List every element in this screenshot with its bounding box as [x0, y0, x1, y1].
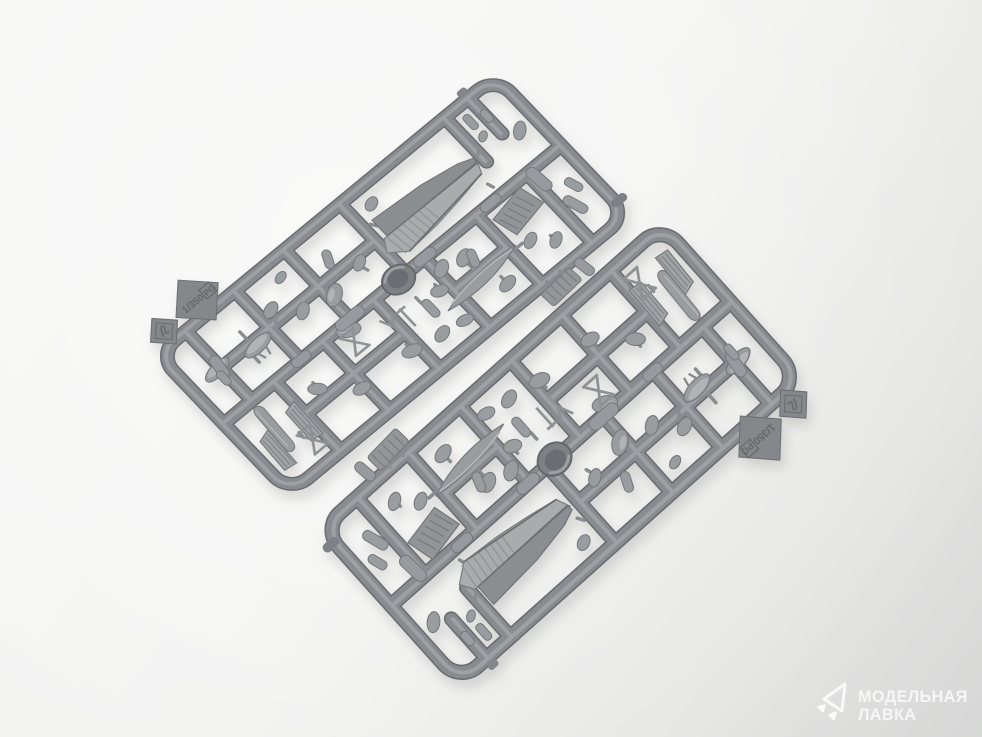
svg-text:МОДЕЛЬНАЯ: МОДЕЛЬНАЯ: [858, 688, 968, 706]
svg-text:ЛАВКА: ЛАВКА: [858, 706, 916, 724]
